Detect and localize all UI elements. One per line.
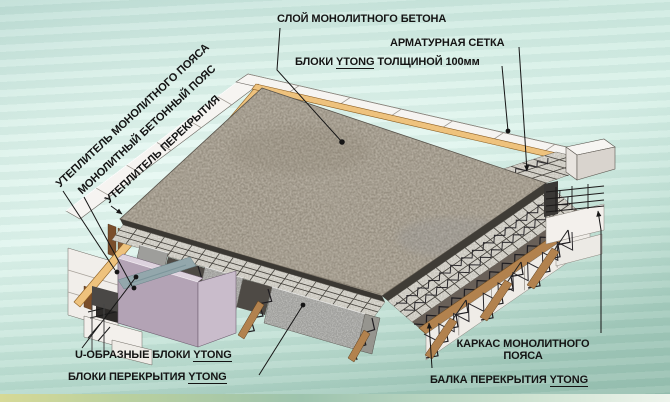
label-rebar-mesh: АРМАТУРНАЯ СЕТКА	[390, 37, 505, 49]
label-belt-frame: КАРКАС МОНОЛИТНОГО ПОЯСА	[443, 338, 603, 362]
label-floor-beam: БАЛКА ПЕРЕКРЫТИЯ YTONG	[430, 374, 588, 386]
label-ytong-blocks-100mm: БЛОКИ YTONG ТОЛЩИНОЙ 100мм	[295, 56, 480, 68]
label-concrete-layer: СЛОЙ МОНОЛИТНОГО БЕТОНА	[277, 13, 446, 25]
label-floor-blocks: БЛОКИ ПЕРЕКРЫТИЯ YTONG	[68, 371, 227, 383]
diagram-stage: СЛОЙ МОНОЛИТНОГО БЕТОНА АРМАТУРНАЯ СЕТКА…	[0, 0, 670, 402]
corner-block-right	[566, 139, 615, 180]
label-u-blocks: U-ОБРАЗНЫЕ БЛОКИ YTONG	[75, 349, 232, 361]
